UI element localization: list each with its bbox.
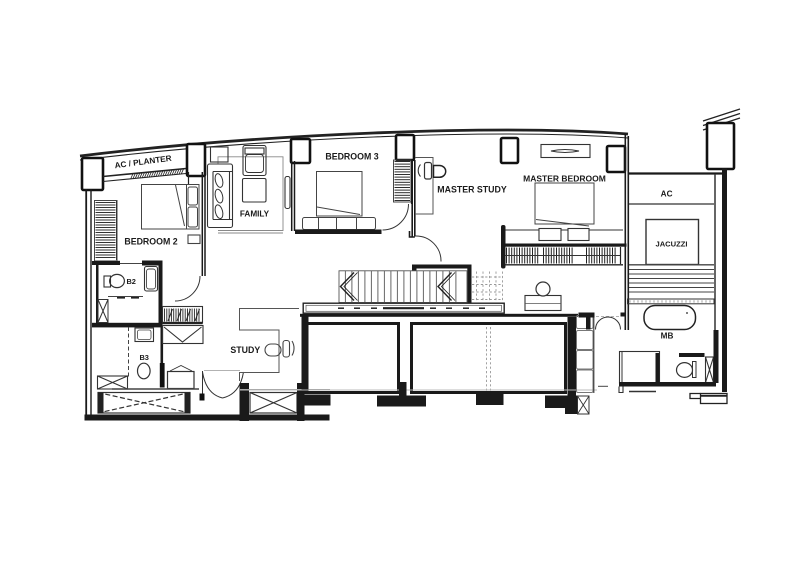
svg-text:B3: B3	[139, 353, 148, 362]
svg-text:B2: B2	[126, 277, 135, 286]
svg-text:MASTER BEDROOM: MASTER BEDROOM	[523, 174, 606, 184]
svg-text:AC: AC	[661, 190, 673, 199]
svg-text:STUDY: STUDY	[230, 345, 260, 355]
svg-text:BEDROOM 3: BEDROOM 3	[325, 152, 378, 162]
svg-text:MASTER STUDY: MASTER STUDY	[437, 185, 507, 195]
svg-text:FAMILY: FAMILY	[240, 210, 270, 219]
svg-text:MB: MB	[661, 332, 674, 341]
svg-text:BEDROOM 2: BEDROOM 2	[124, 237, 177, 247]
svg-text:JACUZZI: JACUZZI	[655, 240, 687, 249]
